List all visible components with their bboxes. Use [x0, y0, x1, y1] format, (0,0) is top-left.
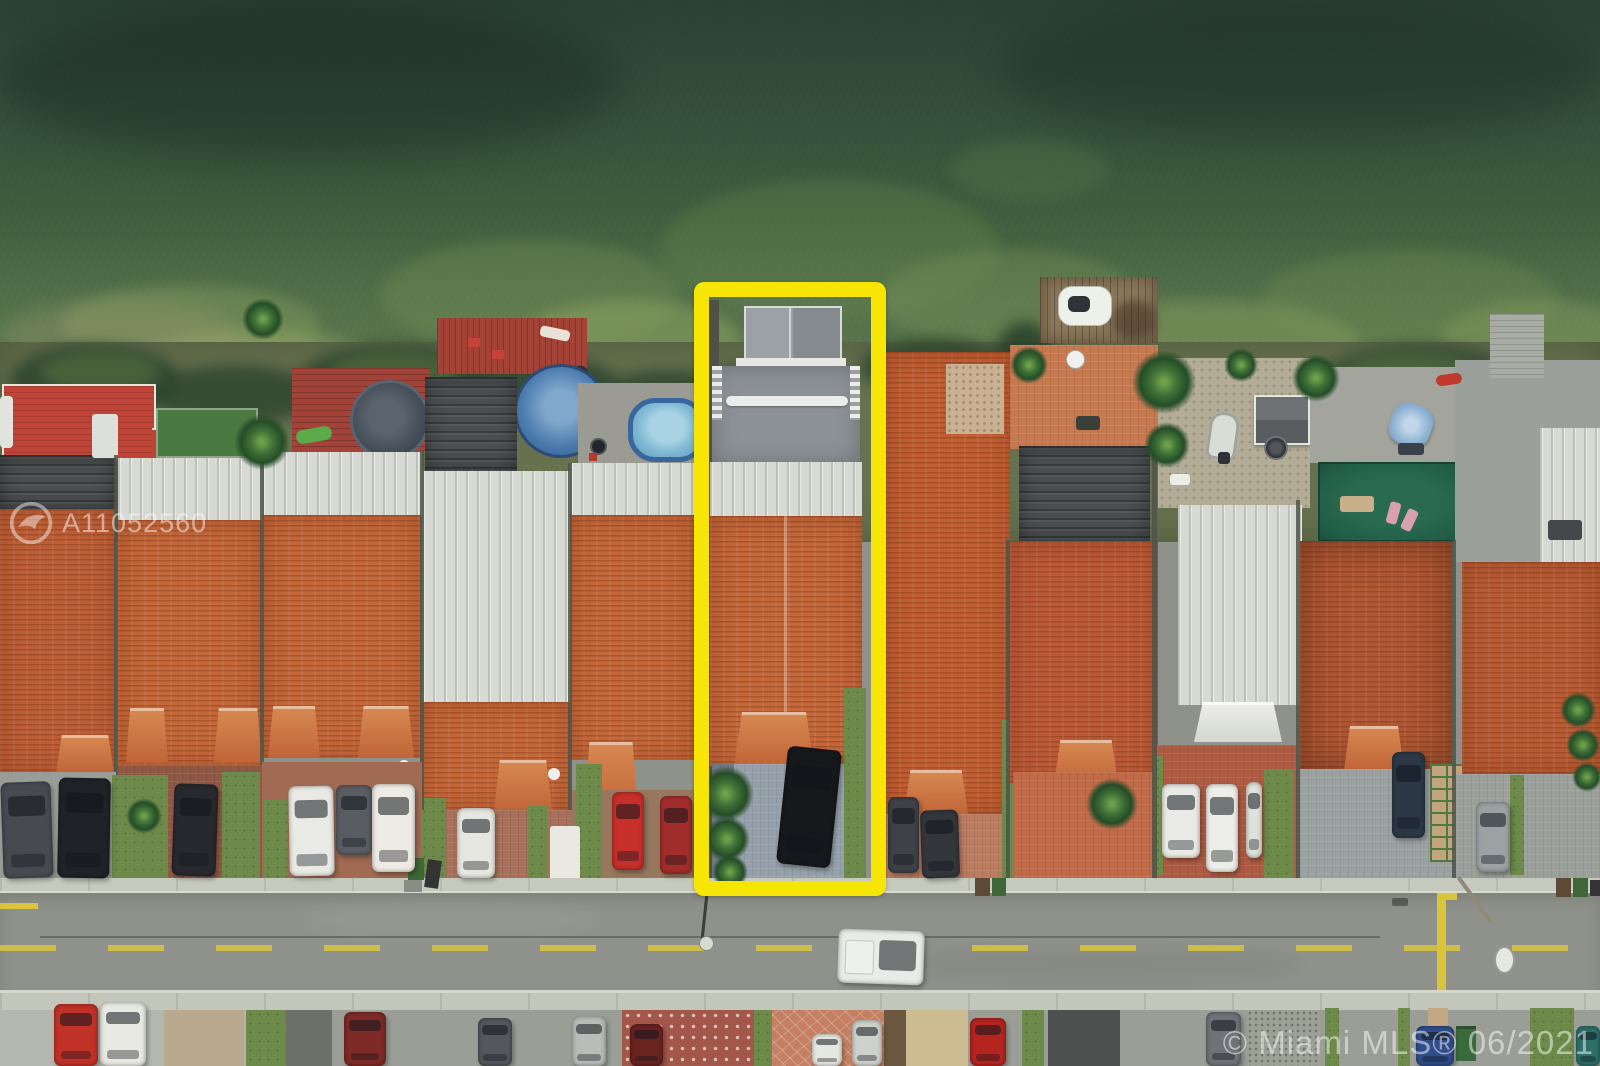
- gray-sedan-house3: [336, 785, 372, 855]
- car-rear-window: [1168, 840, 1194, 850]
- maroon-car-bottom-1: [344, 1012, 386, 1066]
- car-windshield: [1210, 797, 1234, 815]
- car-rear-window: [379, 850, 408, 862]
- dark-sedan-house7: [920, 809, 960, 878]
- hedge-bush: [1560, 692, 1596, 728]
- listing-id-text: A11052560: [62, 508, 207, 539]
- car-rear-window: [1249, 839, 1260, 850]
- palm-tree: [1010, 346, 1048, 384]
- car-rear-window: [61, 1051, 91, 1060]
- hedge-bush: [1572, 762, 1600, 792]
- white-van-house3: [372, 784, 415, 872]
- car-rear-window: [1397, 817, 1419, 829]
- car-windshield: [879, 940, 917, 972]
- car-windshield: [856, 1027, 878, 1036]
- car-rear-window: [351, 1053, 380, 1061]
- palm-tree: [242, 298, 284, 340]
- car-rear-window: [817, 1058, 837, 1062]
- red-car-bottom-2: [970, 1018, 1006, 1066]
- maroon-car-bottom-2: [630, 1024, 663, 1066]
- car-windshield: [106, 1012, 140, 1025]
- car-rear-window: [297, 853, 328, 866]
- car-rear-window: [857, 1055, 877, 1061]
- car-windshield: [482, 1025, 507, 1035]
- mls-bird-logo-icon: [8, 500, 54, 546]
- car-rear-window: [66, 853, 102, 868]
- car-windshield: [1480, 813, 1505, 827]
- car-windshield: [378, 797, 410, 815]
- car-windshield: [294, 799, 328, 818]
- car-rear-window: [483, 1054, 506, 1061]
- car-windshield: [1248, 793, 1260, 808]
- dark-suv-house1-left: [0, 781, 53, 879]
- aerial-photo-scene: A11052560 © Miami MLS® 06/2021: [0, 0, 1600, 1066]
- silver-car-bottom-1: [572, 1016, 606, 1066]
- car-windshield: [576, 1024, 601, 1034]
- white-car-bottom-1: [100, 1002, 146, 1066]
- car-rear-window: [179, 852, 209, 866]
- mls-credit-watermark: © Miami MLS® 06/2021: [1223, 1024, 1594, 1062]
- car-windshield: [349, 1020, 380, 1031]
- silver-car-bottom-2: [852, 1020, 882, 1066]
- car-windshield: [462, 819, 490, 833]
- green-bush: [1086, 778, 1138, 830]
- black-sedan-house2: [171, 783, 218, 876]
- white-car-house4: [457, 808, 495, 878]
- car-rear-window: [617, 851, 639, 862]
- palm-tree: [1132, 350, 1196, 414]
- dark-red-car-house5: [660, 796, 692, 874]
- car-windshield: [7, 796, 45, 816]
- car-rear-window: [635, 1056, 657, 1062]
- listing-id-watermark: A11052560: [8, 500, 207, 546]
- car-rear-window: [1481, 855, 1504, 865]
- palm-tree: [234, 414, 290, 470]
- car-windshield: [1396, 765, 1420, 782]
- car-rear-window: [107, 1050, 138, 1059]
- white-car-house9-partial: [1246, 782, 1262, 858]
- car-windshield: [634, 1030, 658, 1038]
- black-suv-house1: [57, 778, 111, 879]
- car-windshield: [892, 808, 915, 823]
- navy-car-house10: [1392, 752, 1425, 838]
- car-windshield: [341, 796, 368, 810]
- car-windshield: [664, 808, 688, 824]
- white-boxvan-house3: [288, 786, 335, 877]
- hedge-bush: [1566, 728, 1600, 762]
- car-windshield: [1167, 795, 1195, 810]
- car-rear-window: [976, 1054, 1001, 1061]
- red-car-house5-left: [612, 792, 644, 870]
- silver-car-house10: [1476, 802, 1510, 872]
- car-windshield: [975, 1025, 1002, 1035]
- palm-tree: [1144, 422, 1190, 468]
- dark-suv-house7: [888, 797, 919, 873]
- car-windshield: [65, 793, 104, 814]
- car-windshield: [616, 804, 640, 820]
- car-windshield: [60, 1013, 93, 1025]
- car-rear-window: [844, 940, 875, 975]
- car-rear-window: [1211, 850, 1233, 862]
- subject-property-outline: [694, 282, 886, 896]
- car-rear-window: [928, 861, 954, 871]
- car-rear-window: [665, 855, 687, 866]
- car-windshield: [816, 1039, 838, 1045]
- car-rear-window: [463, 861, 489, 871]
- white-sedan-house9: [1206, 784, 1238, 872]
- car-rear-window: [342, 838, 367, 848]
- white-pickup-house9: [1162, 784, 1200, 858]
- car-rear-window: [577, 1054, 600, 1061]
- car-rear-window: [11, 853, 45, 868]
- car-rear-window: [893, 854, 914, 865]
- car-windshield: [925, 820, 954, 835]
- palm-tree: [1292, 354, 1340, 402]
- gray-car-bottom: [478, 1018, 512, 1066]
- palm-tree: [1224, 348, 1258, 382]
- palm-tree: [126, 798, 162, 834]
- white-car-bottom-2: [812, 1034, 842, 1066]
- car-windshield: [179, 797, 212, 817]
- white-pickup-truck-street: [837, 929, 925, 986]
- red-car-bottom-1: [54, 1004, 98, 1066]
